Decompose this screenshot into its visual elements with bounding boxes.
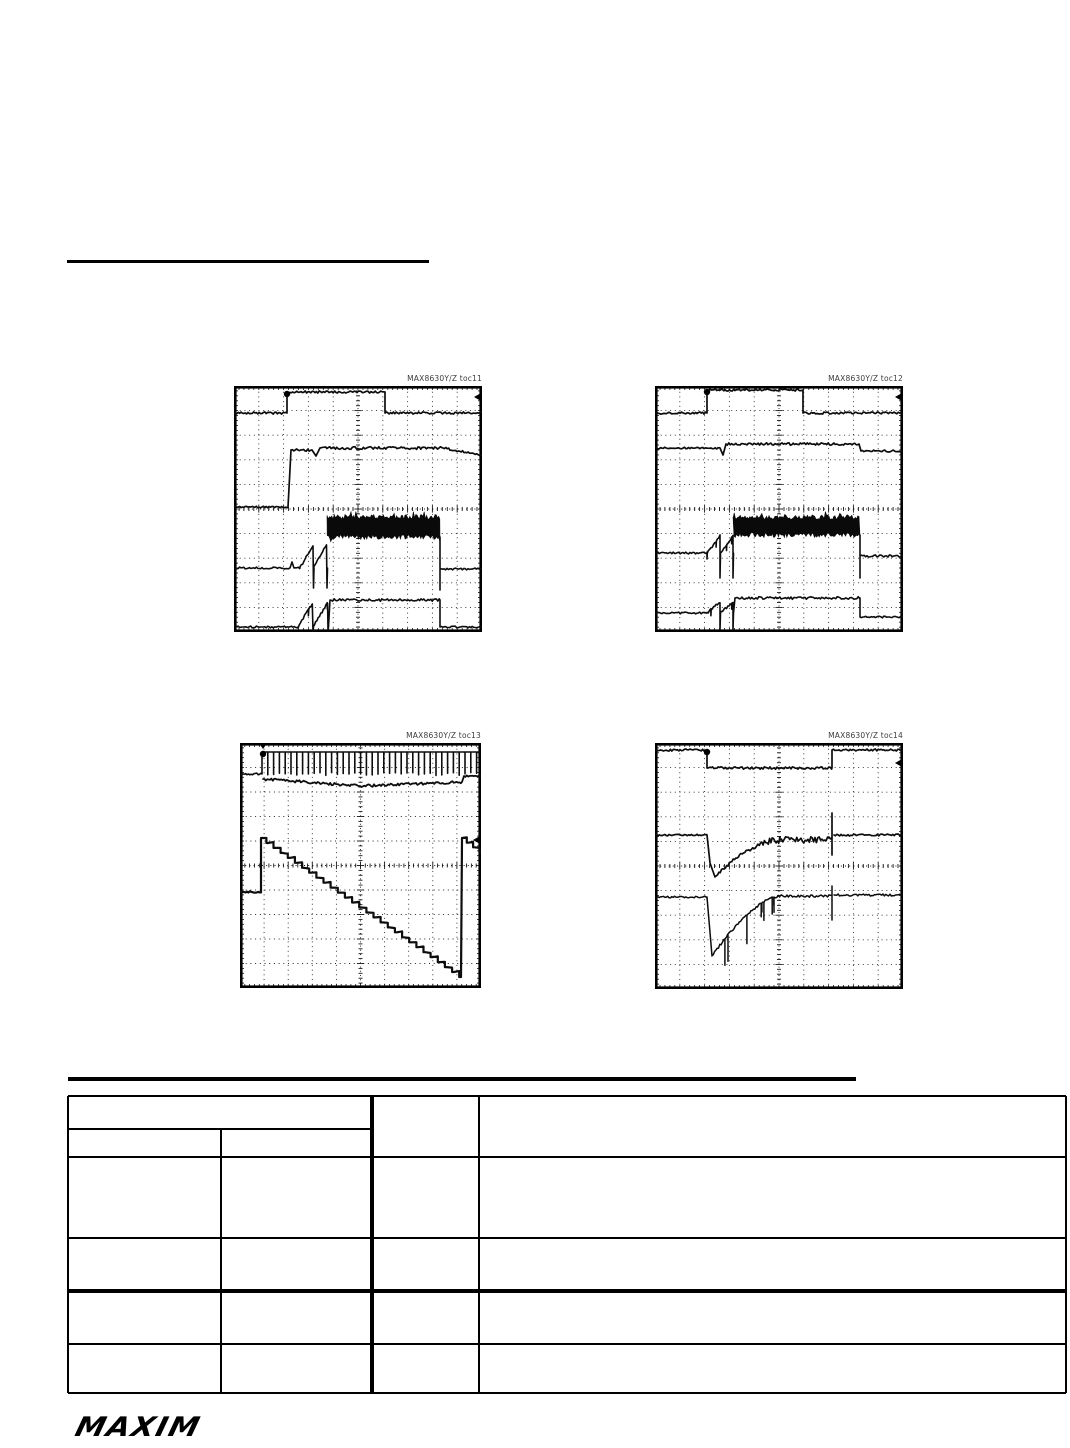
table-cell-r2c1	[68, 1238, 221, 1291]
table-cell-r4c2	[221, 1344, 372, 1393]
table-cell-r3c3	[372, 1291, 479, 1344]
datasheet-page: MAX8630Y/Z toc11MAX8630Y/Z toc12MAX8630Y…	[0, 0, 1070, 1448]
scope-screen	[234, 386, 482, 632]
table-header-group-cell	[68, 1096, 372, 1129]
table-section-rule	[68, 1077, 856, 1081]
table-cell-r1c1	[68, 1157, 221, 1238]
table-header-col4-cell	[372, 1096, 1066, 1157]
trigger-point-icon	[260, 751, 266, 757]
scope-label: MAX8630Y/Z toc11	[312, 374, 482, 383]
table-cell-r4c3	[372, 1344, 479, 1393]
table-header-sub2-cell	[221, 1129, 372, 1157]
scope-label: MAX8630Y/Z toc12	[733, 374, 903, 383]
table-cell-r2c4	[479, 1238, 1066, 1291]
scope-label: MAX8630Y/Z toc13	[311, 731, 481, 740]
scope-screen	[655, 743, 903, 989]
oscilloscope-plot-toc11	[234, 386, 482, 632]
section-heading-rule	[67, 260, 429, 263]
trigger-point-icon	[704, 389, 710, 395]
table-cell-r3c1	[68, 1291, 221, 1344]
oscilloscope-plot-toc12	[655, 386, 903, 632]
table-cell-r4c4	[479, 1344, 1066, 1393]
table-cell-r2c3	[372, 1238, 479, 1291]
oscilloscope-plot-toc13	[240, 743, 481, 988]
table-cell-r1c2	[221, 1157, 372, 1238]
table-cell-r2c2	[221, 1238, 372, 1291]
table-cell-r4c1	[68, 1344, 221, 1393]
scope-screen	[240, 743, 481, 988]
scope-screen	[655, 386, 903, 632]
oscilloscope-plot-toc14	[655, 743, 903, 989]
scope-label: MAX8630Y/Z toc14	[733, 731, 903, 740]
maxim-logo: MAXIM	[72, 1412, 204, 1443]
table-cell-r1c4	[479, 1157, 1066, 1238]
trigger-point-icon	[704, 749, 710, 755]
trigger-point-icon	[284, 391, 290, 397]
table-cell-r3c4	[479, 1291, 1066, 1344]
table-cell-r3c2	[221, 1291, 372, 1344]
table-header-sub1-cell	[68, 1129, 221, 1157]
table-cell-r1c3	[372, 1157, 479, 1238]
